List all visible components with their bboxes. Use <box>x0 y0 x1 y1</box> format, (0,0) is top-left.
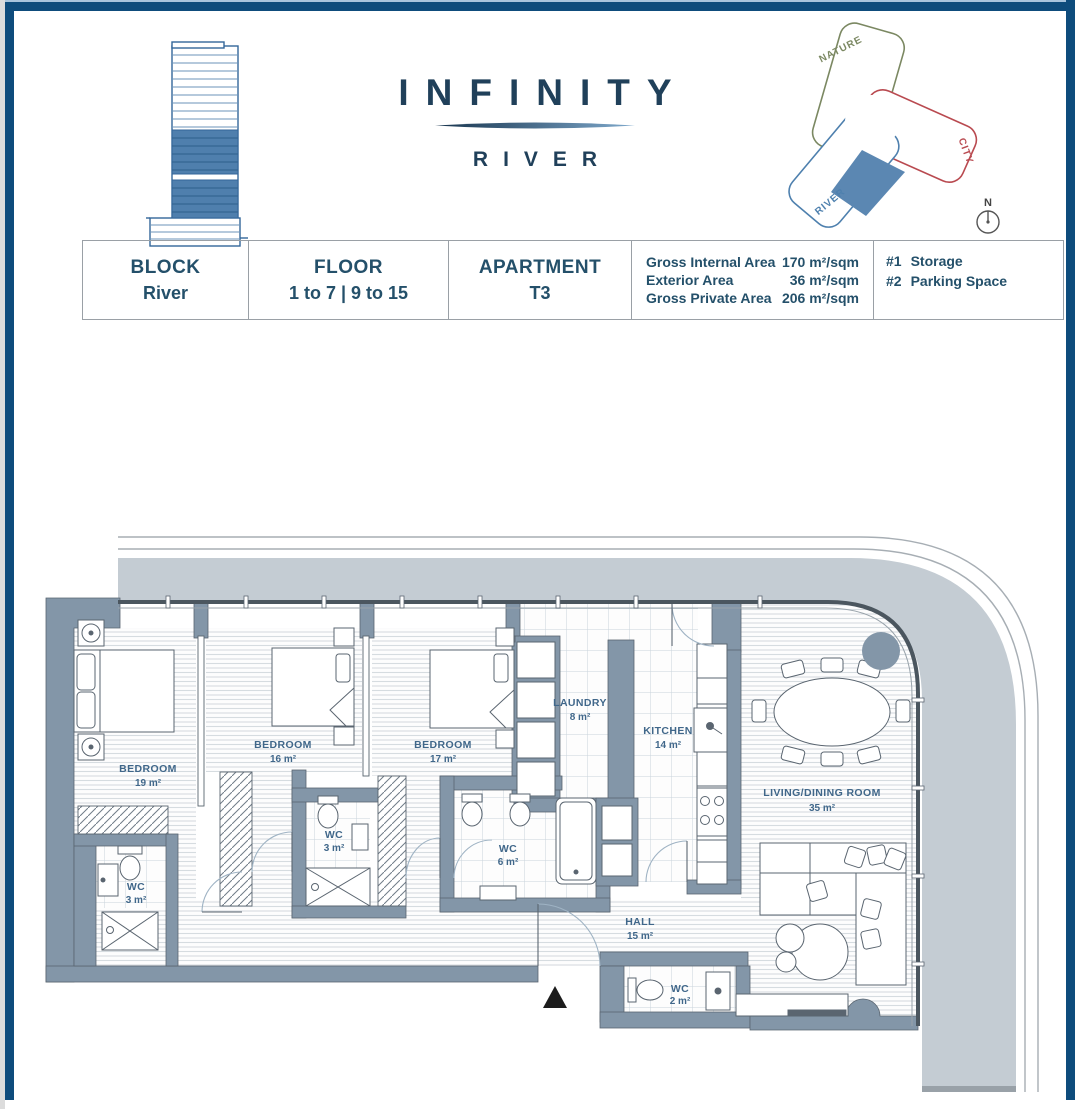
room-label-wc6-area: 6 m² <box>498 857 519 868</box>
room-label-bedroom17-area: 17 m² <box>430 754 457 765</box>
room-label-laundry-area: 8 m² <box>570 712 591 723</box>
room-label-bedroom16-area: 16 m² <box>270 754 297 765</box>
room-label-wc6-name: WC <box>499 843 517 855</box>
room-label-living-area: 35 m² <box>809 803 836 814</box>
brochure-page: INFINITY RIVER NATURE CITY RIVER N <box>0 0 1080 1109</box>
room-label-bedroom19-area: 19 m² <box>135 778 162 789</box>
room-label-wc2-area: 2 m² <box>670 996 691 1007</box>
room-label-living-name: LIVING/DINING ROOM <box>763 787 880 799</box>
room-label-bedroom19-name: BEDROOM <box>119 763 177 775</box>
room-label-laundry-name: LAUNDRY <box>553 697 607 709</box>
room-label-bedroom16-name: BEDROOM <box>254 739 312 751</box>
room-label-wc-mid-name: WC <box>325 829 343 841</box>
entrance-arrow-icon <box>543 986 567 1008</box>
room-label-wc2-name: WC <box>671 983 689 995</box>
room-label-wc-left-area: 3 m² <box>126 895 147 906</box>
room-label-kitchen-area: 14 m² <box>655 740 682 751</box>
floor-plan: BEDROOM 19 m² BEDROOM 16 m² BEDROOM 17 m… <box>0 0 1080 1109</box>
room-label-wc-left-name: WC <box>127 881 145 893</box>
room-label-hall-name: HALL <box>625 916 655 928</box>
column <box>862 632 900 670</box>
room-label-hall-area: 15 m² <box>627 931 654 942</box>
room-label-bedroom17-name: BEDROOM <box>414 739 472 751</box>
room-label-wc-mid-area: 3 m² <box>324 843 345 854</box>
room-label-kitchen-name: KITCHEN <box>643 725 692 737</box>
